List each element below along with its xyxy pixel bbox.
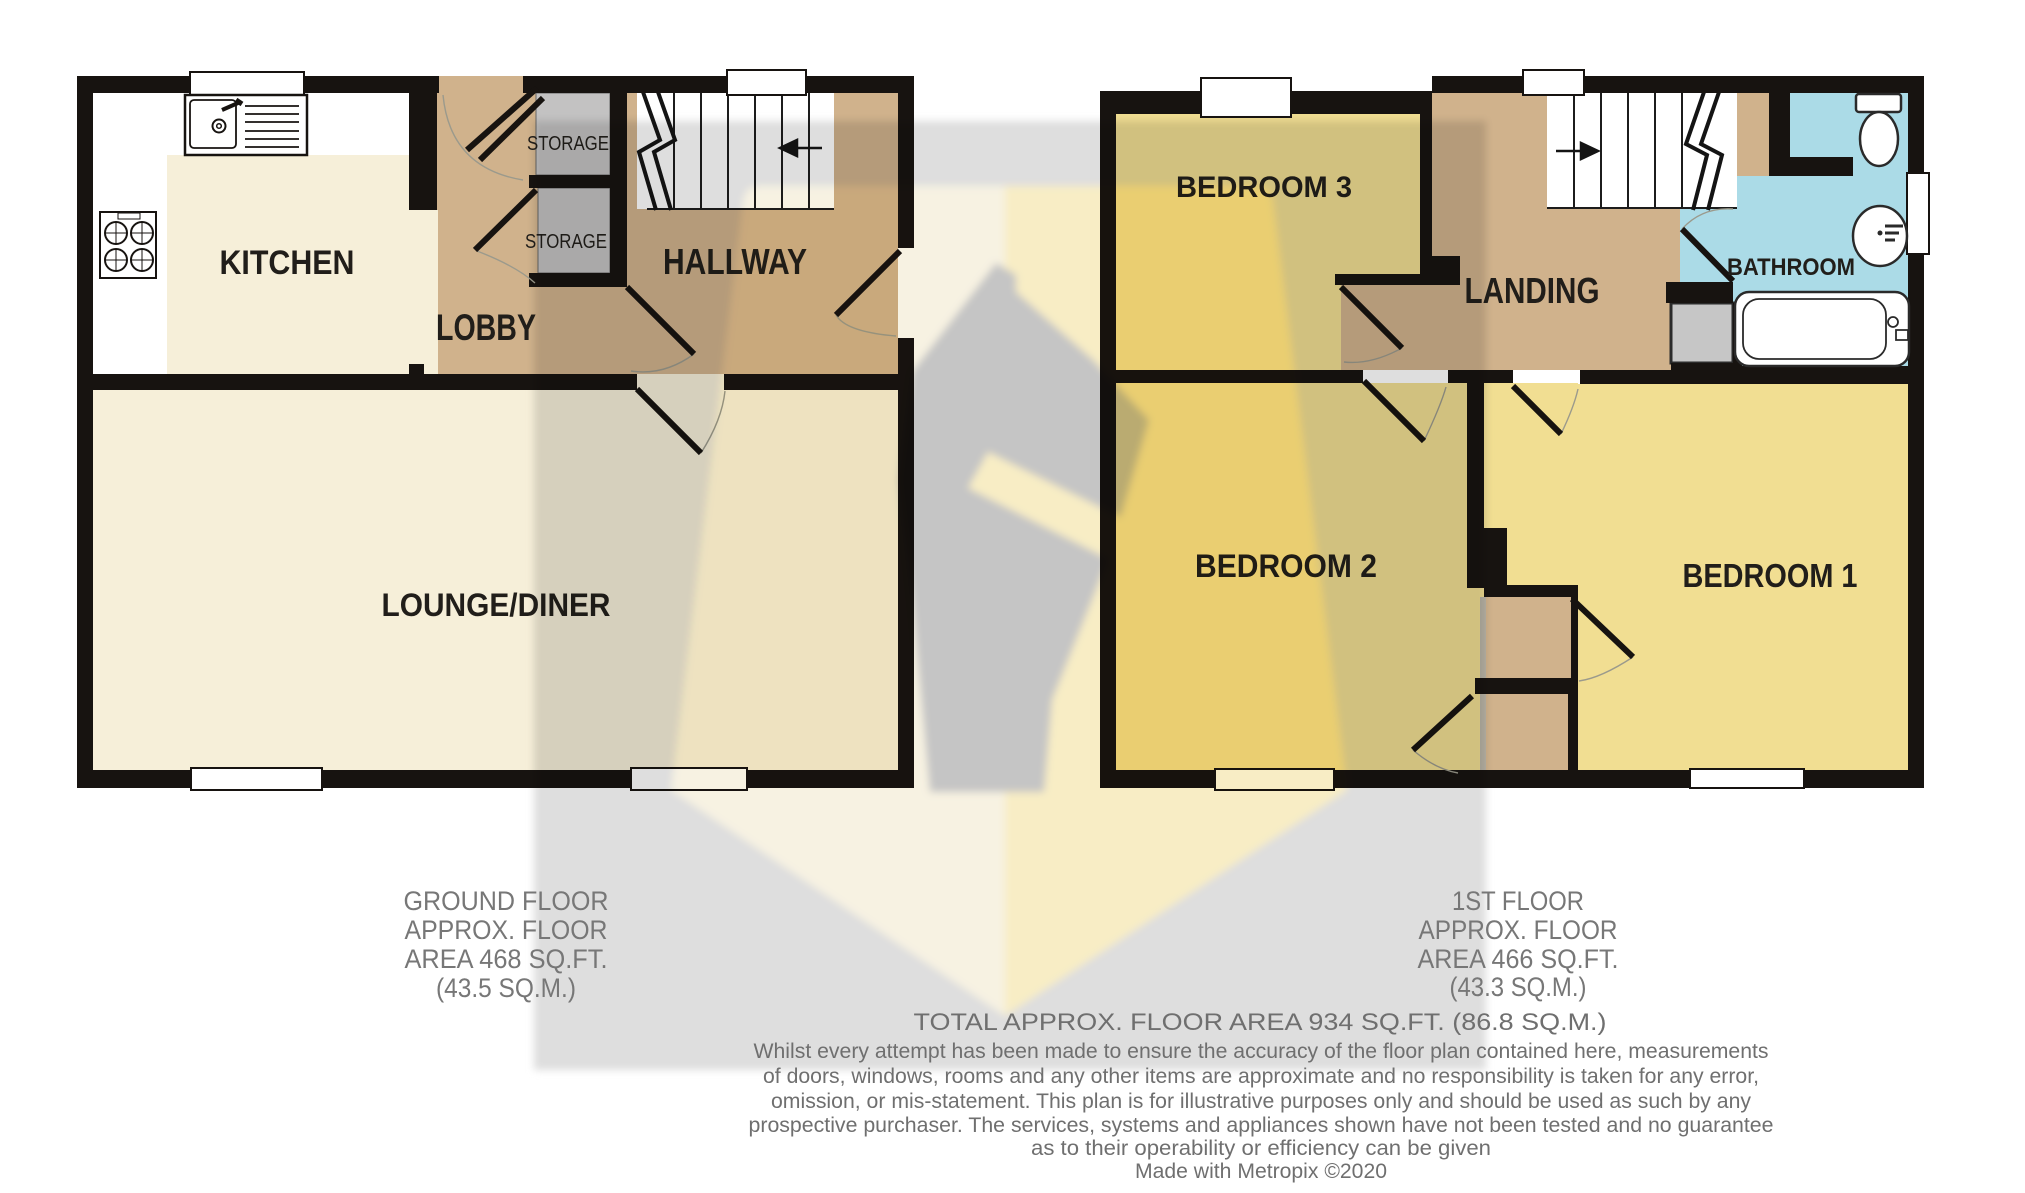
svg-text:LOBBY: LOBBY: [436, 307, 536, 348]
svg-text:KITCHEN: KITCHEN: [220, 244, 355, 282]
svg-text:of doors, windows, rooms and a: of doors, windows, rooms and any other i…: [763, 1064, 1759, 1088]
svg-text:AREA 466 SQ.FT.: AREA 466 SQ.FT.: [1418, 944, 1619, 974]
svg-text:GROUND FLOOR: GROUND FLOOR: [404, 886, 609, 916]
svg-text:1ST FLOOR: 1ST FLOOR: [1452, 886, 1584, 916]
svg-text:AREA 468 SQ.FT.: AREA 468 SQ.FT.: [405, 944, 608, 974]
svg-text:APPROX. FLOOR: APPROX. FLOOR: [405, 915, 608, 945]
svg-text:(43.3 SQ.M.): (43.3 SQ.M.): [1450, 972, 1587, 1002]
svg-text:BEDROOM 1: BEDROOM 1: [1683, 557, 1858, 594]
svg-text:omission, or mis-statement. Th: omission, or mis-statement. This plan is…: [771, 1089, 1751, 1113]
svg-text:Made with Metropix ©2020: Made with Metropix ©2020: [1135, 1159, 1387, 1183]
svg-text:prospective purchaser. The ser: prospective purchaser. The services, sys…: [749, 1113, 1774, 1137]
svg-text:APPROX. FLOOR: APPROX. FLOOR: [1419, 915, 1618, 945]
svg-text:BATHROOM: BATHROOM: [1727, 254, 1855, 281]
svg-text:Whilst every attempt has been: Whilst every attempt has been made to en…: [754, 1039, 1769, 1063]
svg-text:TOTAL APPROX. FLOOR AREA 934 S: TOTAL APPROX. FLOOR AREA 934 SQ.FT. (86.…: [914, 1009, 1607, 1036]
svg-text:as to their operability or eff: as to their operability or efficiency ca…: [1031, 1136, 1491, 1160]
svg-text:(43.5 SQ.M.): (43.5 SQ.M.): [436, 973, 576, 1003]
